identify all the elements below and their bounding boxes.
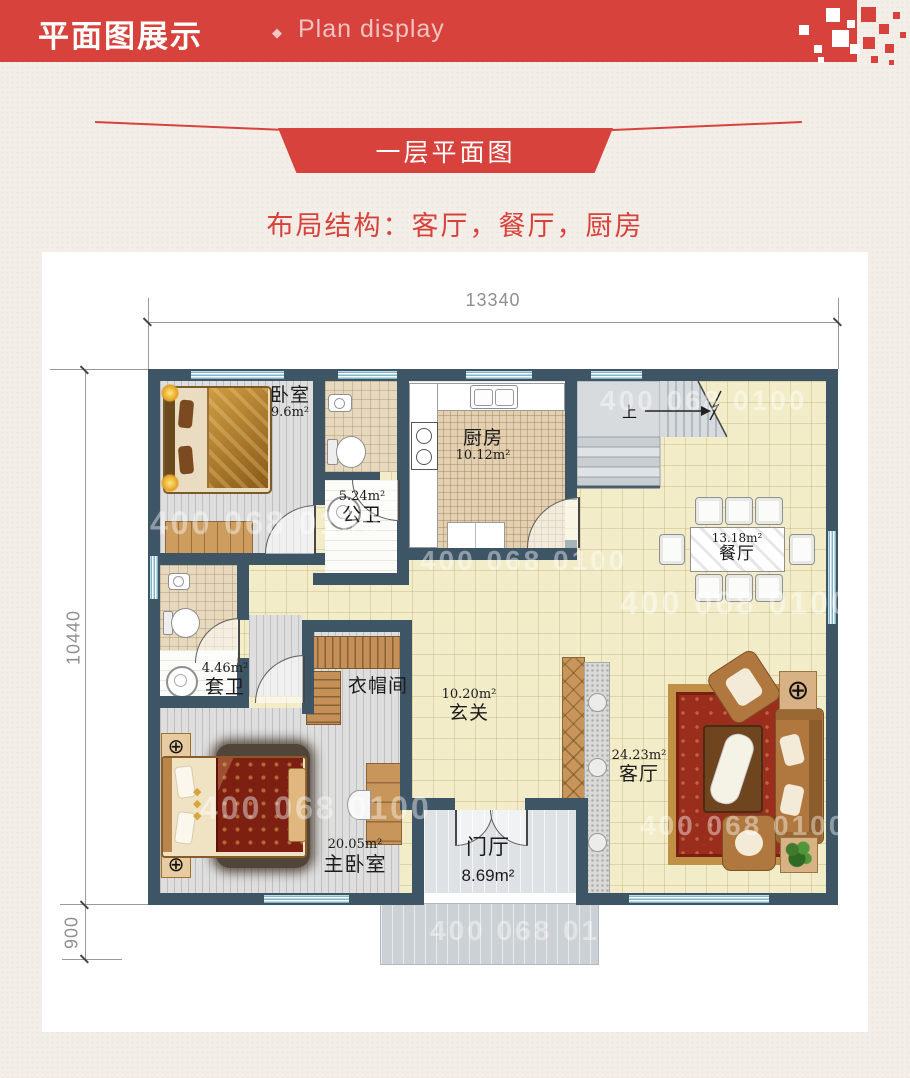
room-label-cloakroom: 衣帽间 [340, 676, 416, 697]
section-ribbon: 一层平面图 [278, 128, 613, 173]
dim-line-left [85, 370, 86, 905]
coffee-table [703, 725, 763, 813]
sink-icon [328, 394, 352, 412]
dim-width: 13340 [443, 290, 543, 311]
ribbon-line-right [612, 121, 802, 131]
chair [695, 497, 723, 525]
stove-icon [411, 422, 438, 470]
room-label-ensuite: 4.46m²套卫 [192, 662, 258, 698]
stairs: 上 [577, 375, 727, 490]
room-label-public-bath: 5.24m²公卫 [328, 490, 396, 526]
dim-porch: 900 [62, 903, 83, 963]
header-banner: 平面图展示 ◆ Plan display [0, 0, 857, 62]
window [263, 894, 350, 904]
dim-height: 10440 [64, 596, 85, 680]
pillow [779, 733, 806, 767]
dim-line-top [148, 322, 838, 323]
room-label-entry-hall: 10.20m²玄关 [428, 688, 510, 724]
desk [366, 763, 402, 845]
stairs-up-label: 上 [622, 403, 637, 421]
wardrobe [310, 636, 402, 669]
chair [725, 574, 753, 602]
window [337, 370, 398, 380]
room-label-dining: 13.18m² 餐厅 [696, 532, 778, 564]
room-label-kitchen: 厨房10.12m² [438, 428, 528, 464]
bed-bench [288, 768, 306, 842]
chair [789, 534, 815, 565]
window [628, 894, 770, 904]
sofa [775, 708, 824, 844]
window [190, 370, 285, 380]
pillow [779, 783, 805, 817]
diamond-icon: ◆ [272, 25, 282, 41]
kitchen-cabinet [447, 522, 505, 549]
window [465, 370, 533, 380]
window [149, 555, 159, 600]
wall [148, 381, 160, 905]
porch [380, 903, 599, 965]
side-table-lamp-icon: ⊕ [779, 671, 817, 710]
window [827, 530, 837, 625]
plant-icon [780, 837, 818, 873]
toilet-icon [327, 436, 365, 466]
master-bed: ◆◆◆ [161, 756, 307, 858]
chair [755, 574, 783, 602]
pillow [178, 399, 194, 428]
layout-description: 布局结构：客厅，餐厅，厨房 [42, 204, 868, 243]
chair [659, 534, 685, 565]
chair [755, 497, 783, 525]
room-label-master: 20.05m² 主卧室 [300, 838, 410, 875]
ribbon-line-left [95, 121, 279, 131]
wall [826, 381, 838, 905]
chair [695, 574, 723, 602]
room-label-foyer: 门厅 8.69m² [432, 836, 544, 885]
page-title: 平面图展示 [38, 11, 203, 56]
chair [725, 497, 753, 525]
kitchen-sink-icon [470, 385, 518, 409]
toilet-icon [163, 608, 199, 636]
desk-chair [347, 790, 371, 820]
armchair [722, 815, 776, 871]
room-label-living: 24.23m²客厅 [598, 749, 680, 785]
room-label-bedroom: 卧室9.6m² [252, 385, 328, 421]
window [590, 370, 643, 380]
tv-panel [562, 657, 585, 800]
section-title: 一层平面图 [375, 133, 515, 169]
sink-icon [168, 573, 190, 590]
pillow [178, 445, 194, 474]
dresser [165, 521, 253, 555]
page-subtitle-en: Plan display [298, 15, 445, 44]
